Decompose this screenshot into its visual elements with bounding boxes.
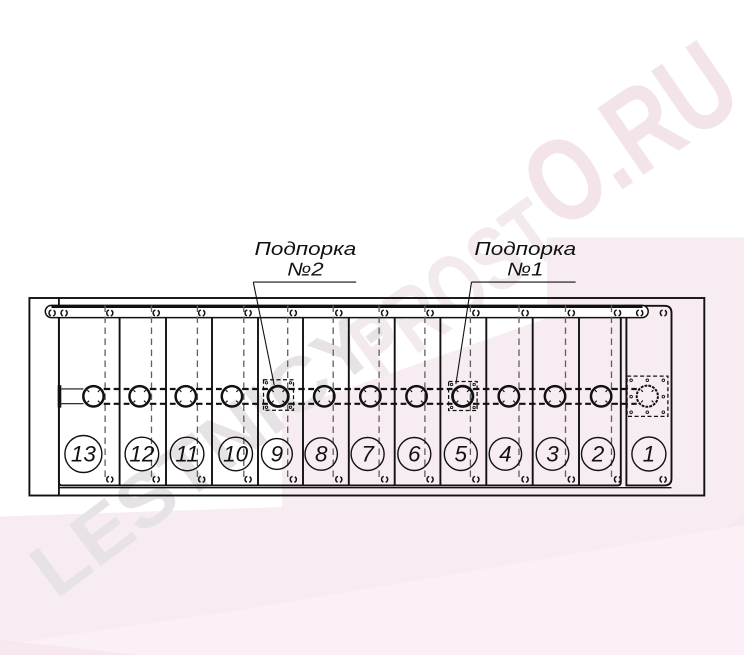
svg-text:8: 8 (315, 442, 328, 467)
svg-text:11: 11 (175, 442, 198, 467)
svg-text:№2: №2 (287, 259, 324, 280)
svg-text:3: 3 (546, 442, 559, 467)
svg-text:2: 2 (591, 442, 605, 467)
svg-text:№1: №1 (507, 259, 544, 280)
svg-text:Подпорка: Подпорка (474, 238, 576, 259)
svg-text:5: 5 (455, 442, 468, 467)
svg-text:12: 12 (129, 442, 155, 467)
svg-text:7: 7 (361, 442, 375, 467)
svg-text:1: 1 (643, 442, 656, 467)
svg-text:9: 9 (271, 442, 284, 467)
svg-text:Подпорка: Подпорка (255, 238, 357, 259)
svg-text:6: 6 (408, 442, 421, 467)
svg-text:10: 10 (223, 442, 249, 467)
svg-text:4: 4 (499, 442, 512, 467)
svg-text:13: 13 (71, 442, 97, 467)
